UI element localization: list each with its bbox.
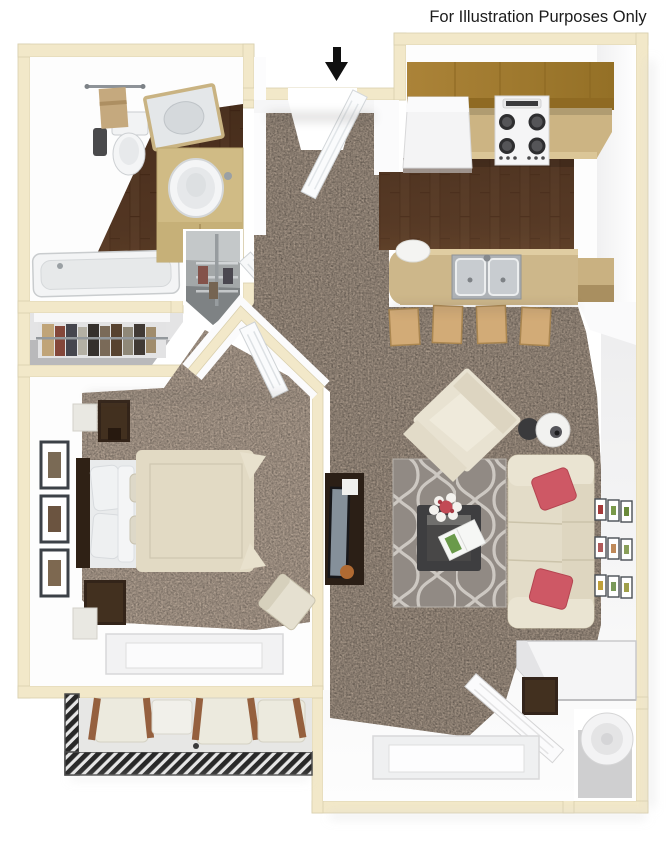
svg-text:For Illustration Purposes Only: For Illustration Purposes Only bbox=[429, 8, 647, 26]
